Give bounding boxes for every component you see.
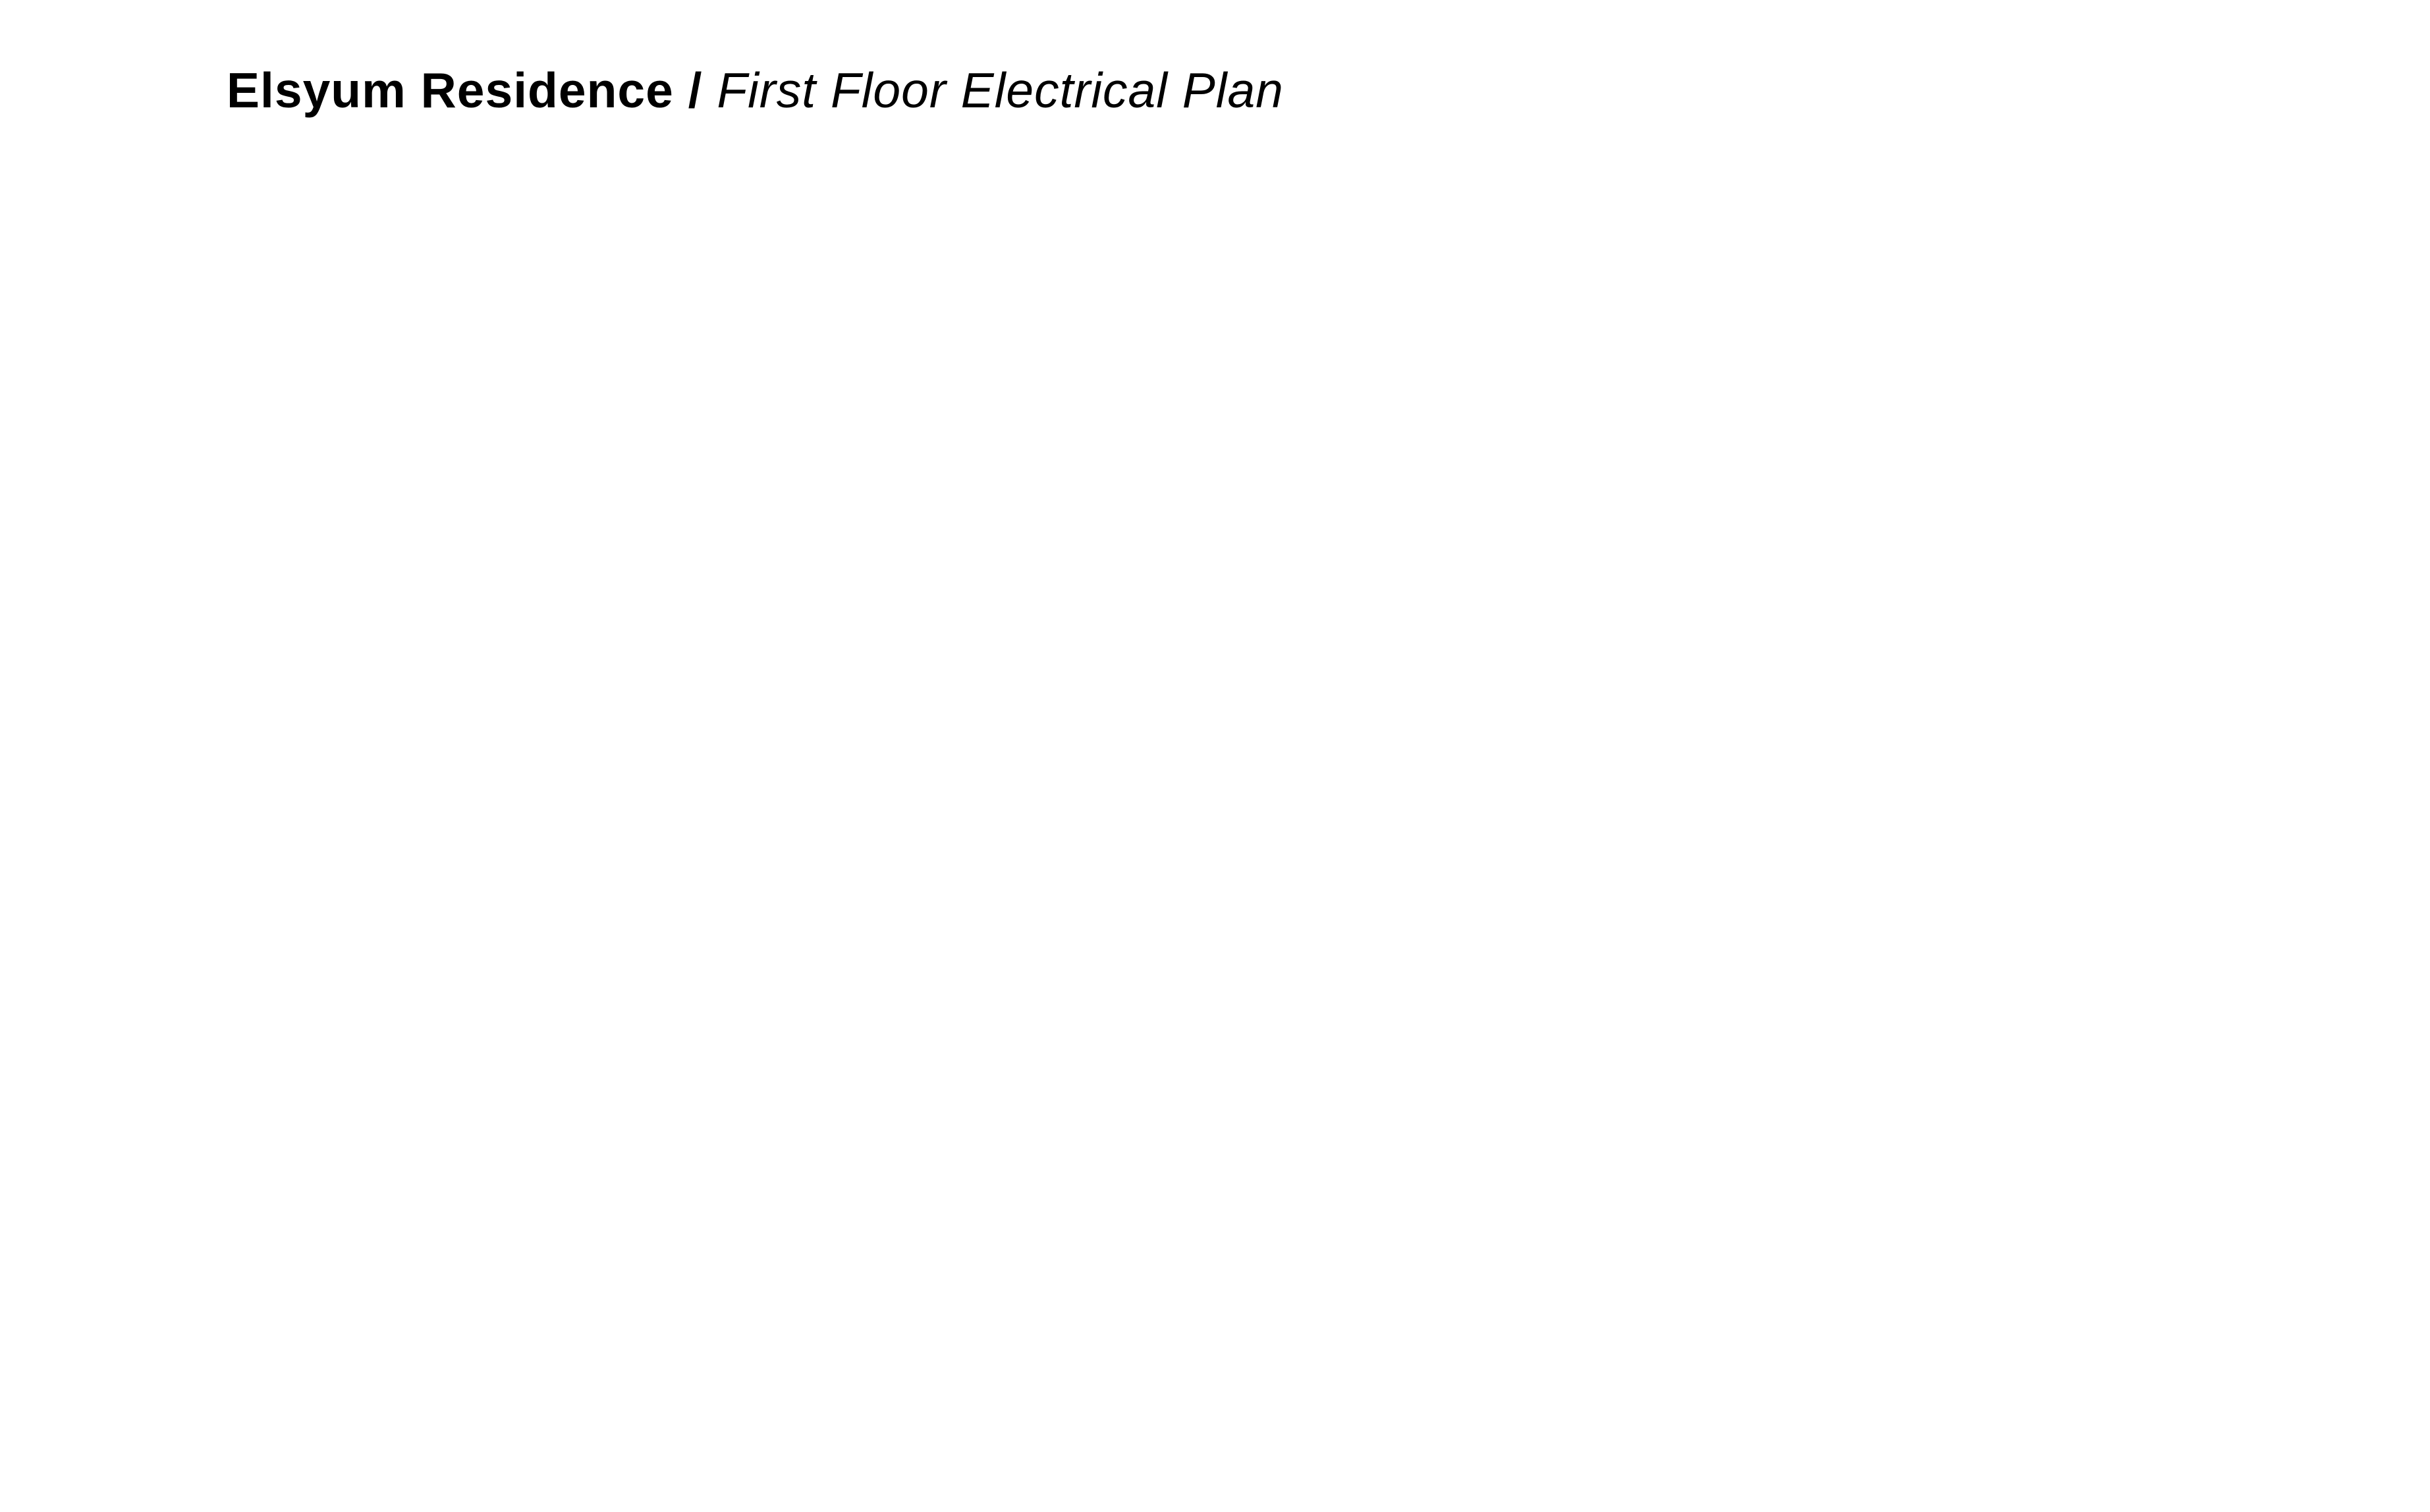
svg-text:Elsyum Residence / First Floor: Elsyum Residence / First Floor Electrica…: [227, 63, 1284, 118]
